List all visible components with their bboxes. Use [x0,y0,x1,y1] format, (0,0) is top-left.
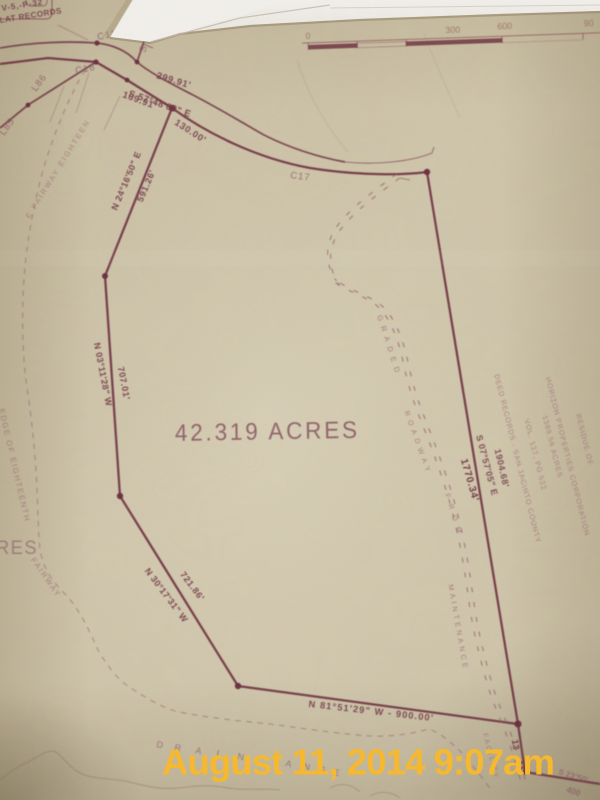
svg-text:August 11, 2014 9:07am: August 11, 2014 9:07am [162,742,554,783]
